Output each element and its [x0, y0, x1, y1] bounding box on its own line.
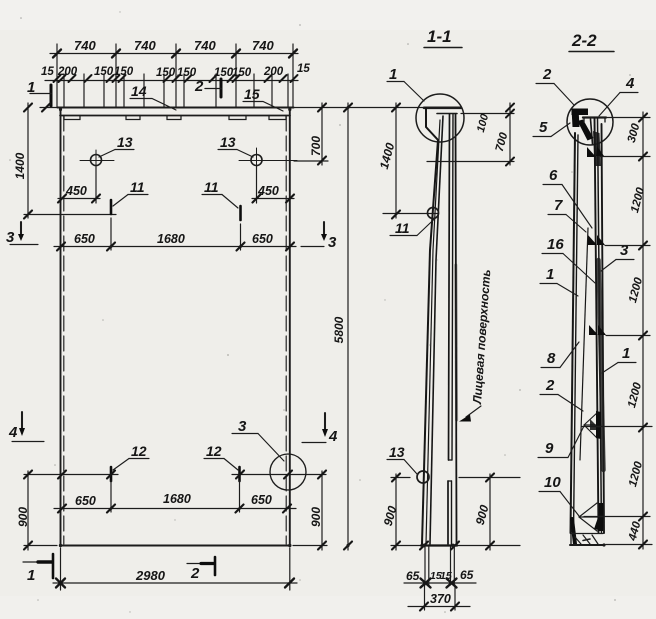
svg-text:9: 9: [545, 440, 554, 457]
svg-text:8: 8: [547, 350, 556, 367]
svg-text:450: 450: [257, 184, 279, 198]
svg-text:3: 3: [238, 418, 247, 435]
svg-text:1: 1: [27, 567, 35, 584]
svg-text:11: 11: [204, 179, 219, 195]
svg-text:740: 740: [194, 38, 216, 53]
svg-text:450: 450: [65, 184, 87, 198]
svg-text:6: 6: [549, 167, 558, 184]
svg-text:3: 3: [6, 229, 15, 246]
svg-text:11: 11: [130, 179, 145, 195]
svg-text:740: 740: [74, 38, 96, 53]
svg-text:4: 4: [625, 75, 635, 92]
svg-text:1: 1: [27, 79, 35, 96]
svg-text:1680: 1680: [157, 232, 185, 246]
svg-text:15: 15: [41, 66, 54, 78]
svg-text:14: 14: [131, 83, 147, 99]
svg-text:150: 150: [177, 67, 197, 79]
svg-text:5: 5: [539, 119, 548, 136]
svg-text:3: 3: [620, 242, 629, 259]
svg-text:1680: 1680: [163, 492, 191, 506]
svg-text:13: 13: [220, 134, 236, 150]
svg-text:15: 15: [440, 570, 452, 582]
svg-text:3: 3: [328, 234, 337, 251]
svg-text:1: 1: [389, 66, 397, 83]
svg-text:65: 65: [406, 569, 420, 583]
svg-text:65: 65: [460, 568, 474, 582]
svg-text:650: 650: [251, 493, 272, 507]
svg-text:150: 150: [94, 66, 114, 78]
svg-text:2: 2: [194, 78, 204, 95]
svg-text:4: 4: [8, 424, 18, 441]
svg-text:650: 650: [252, 232, 273, 246]
svg-text:1-1: 1-1: [427, 27, 452, 46]
svg-text:10: 10: [544, 474, 561, 491]
svg-text:7: 7: [554, 197, 563, 214]
svg-text:15: 15: [244, 86, 260, 102]
svg-text:740: 740: [252, 38, 274, 53]
svg-text:150: 150: [156, 67, 176, 79]
svg-text:150: 150: [232, 67, 252, 79]
svg-text:13: 13: [389, 444, 405, 460]
svg-text:900: 900: [16, 507, 30, 527]
svg-text:12: 12: [131, 443, 147, 459]
svg-text:150: 150: [114, 66, 134, 78]
svg-text:1: 1: [622, 345, 630, 362]
svg-text:370: 370: [430, 592, 451, 606]
svg-text:12: 12: [206, 443, 222, 459]
svg-text:900: 900: [309, 507, 323, 527]
svg-text:740: 740: [134, 38, 156, 53]
svg-text:2: 2: [545, 377, 555, 394]
svg-text:5800: 5800: [332, 316, 346, 343]
svg-text:700: 700: [309, 136, 323, 156]
svg-text:2980: 2980: [135, 568, 166, 583]
svg-text:4: 4: [328, 428, 338, 445]
svg-text:2-2: 2-2: [571, 31, 597, 50]
svg-text:650: 650: [75, 494, 96, 508]
svg-text:150: 150: [214, 67, 234, 79]
svg-text:200: 200: [57, 66, 78, 78]
svg-text:11: 11: [395, 220, 410, 236]
svg-text:2: 2: [190, 565, 200, 582]
svg-text:15: 15: [297, 63, 310, 75]
svg-text:1: 1: [546, 266, 554, 283]
svg-text:13: 13: [117, 134, 133, 150]
svg-text:1400: 1400: [13, 152, 27, 179]
svg-text:16: 16: [547, 236, 564, 253]
svg-text:2: 2: [542, 66, 552, 83]
svg-text:650: 650: [74, 232, 95, 246]
svg-text:200: 200: [263, 66, 284, 78]
